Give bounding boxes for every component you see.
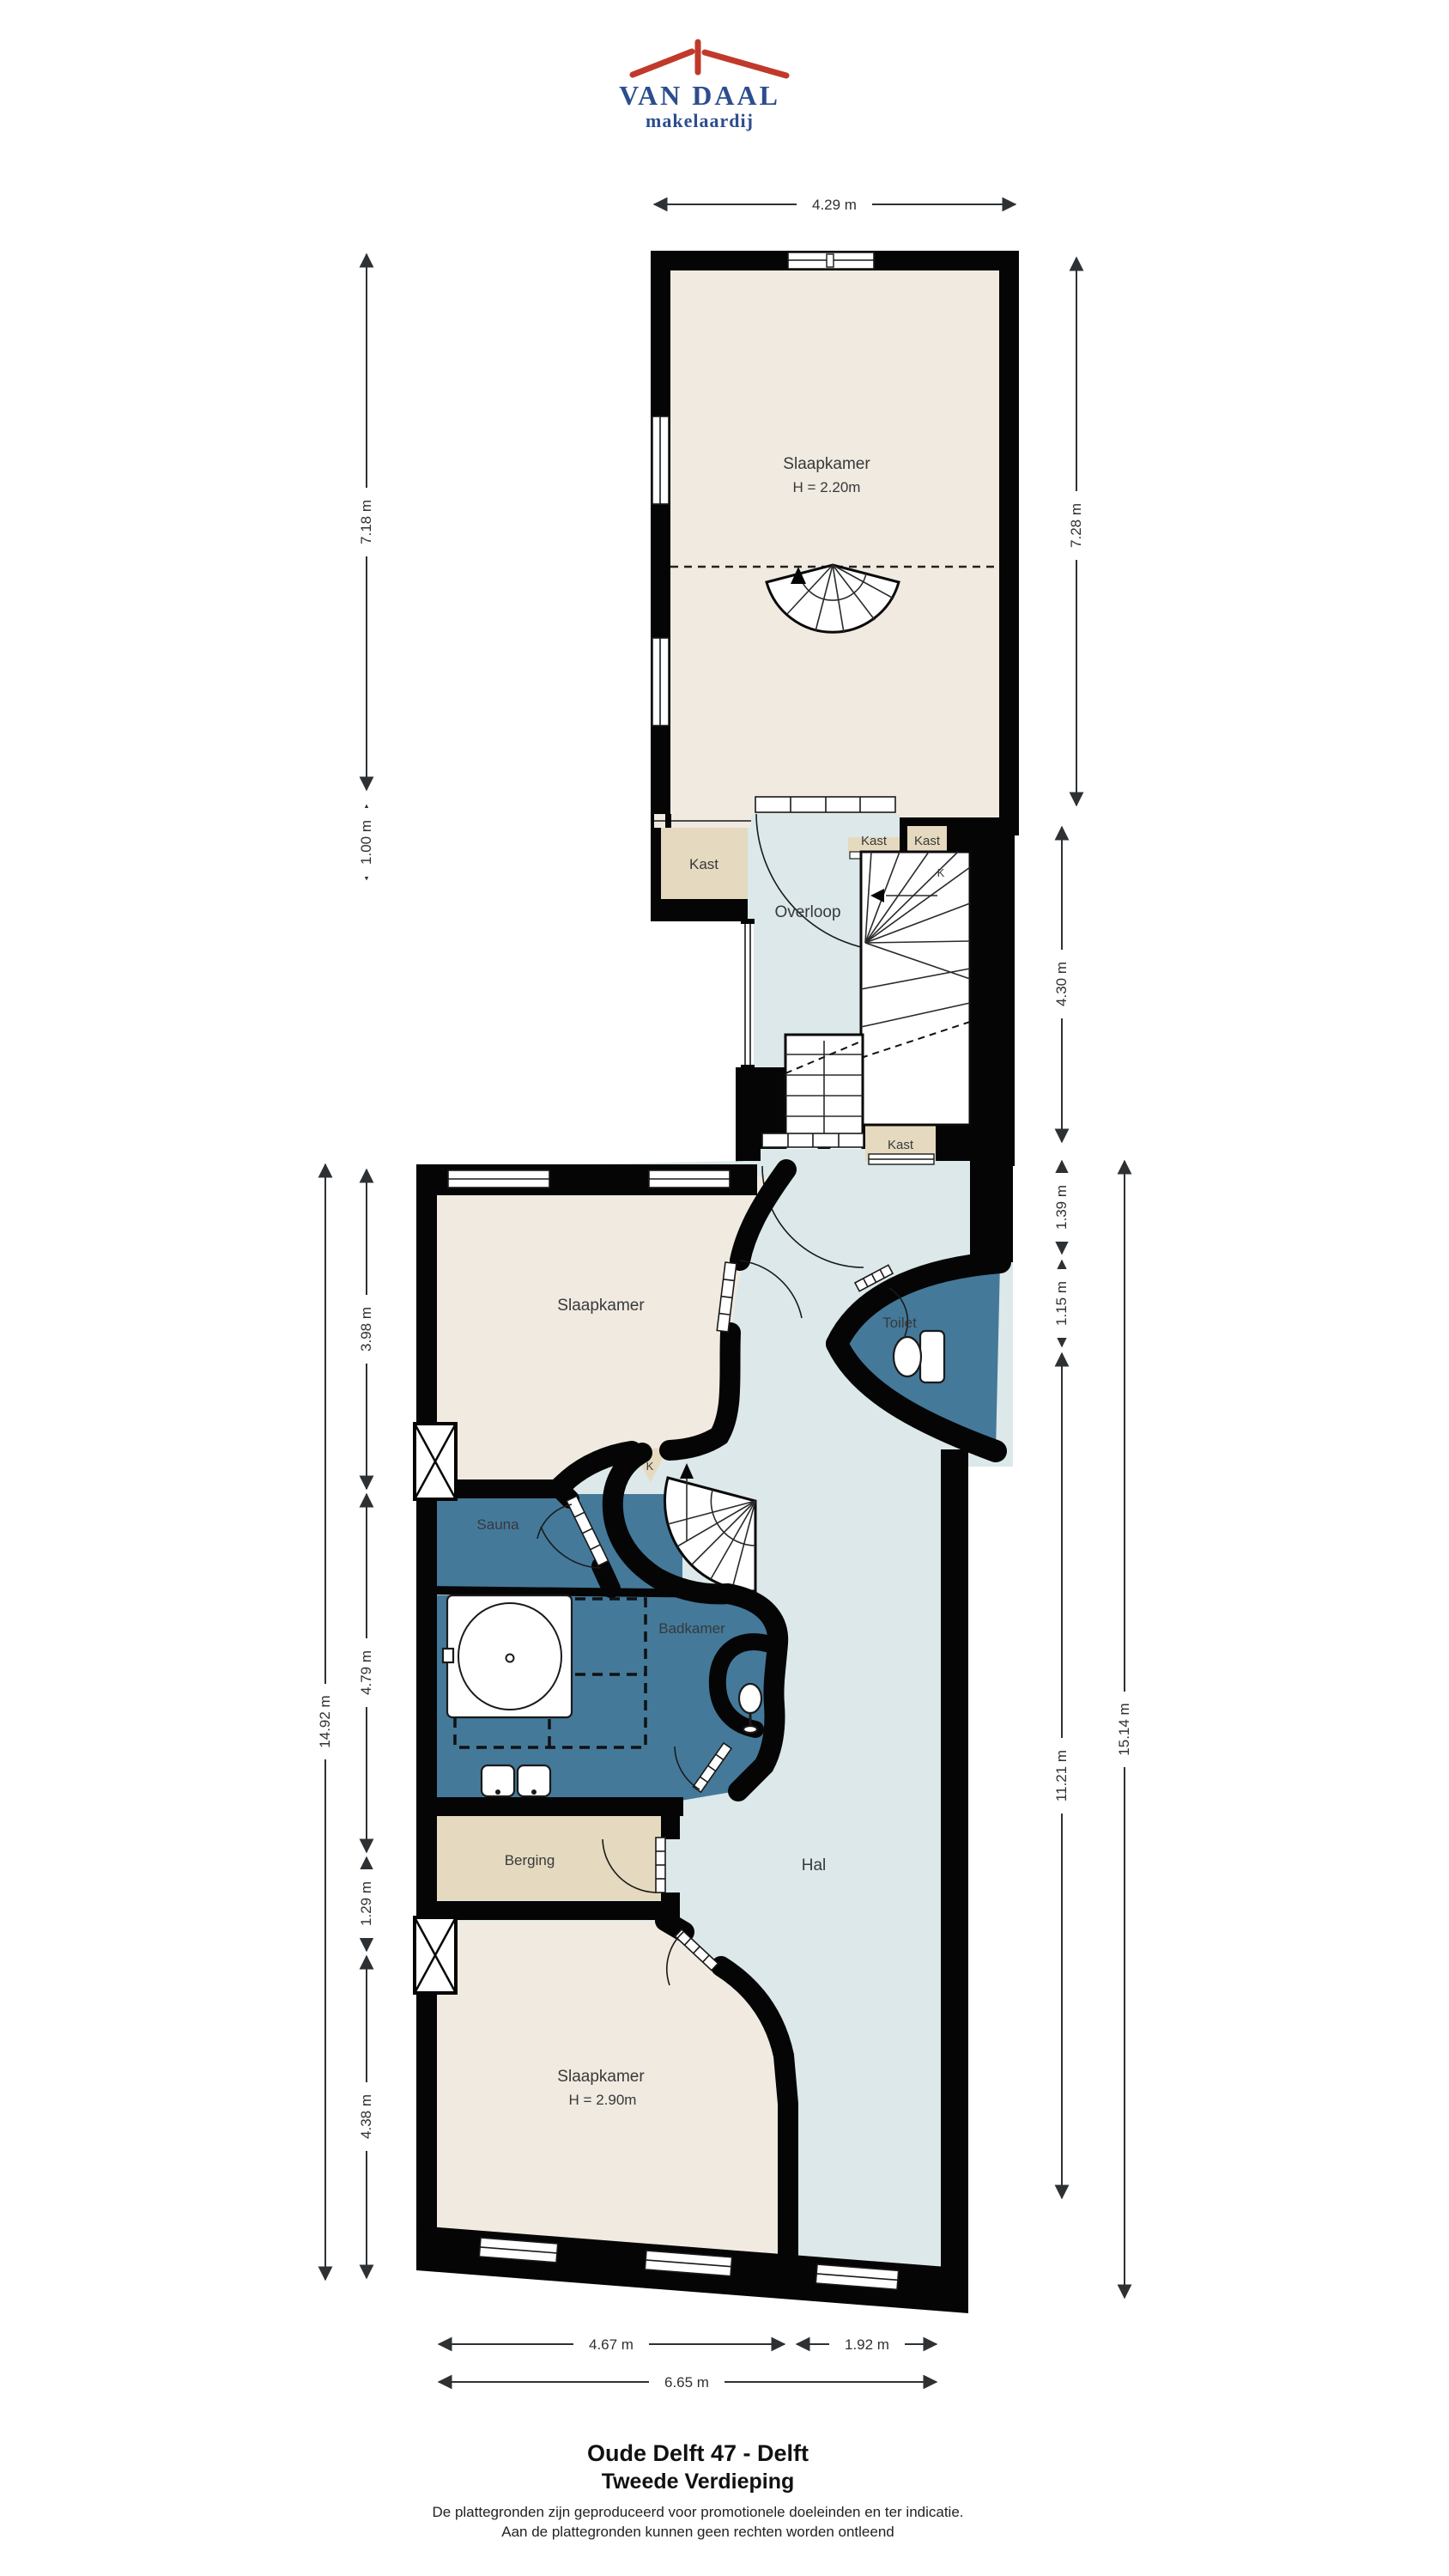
dim-665-label: 6.65 m <box>664 2374 709 2391</box>
floorplan-svg: VAN DAAL makelaardij <box>0 0 1449 2576</box>
label-k-upper: K <box>937 866 945 879</box>
dim-192-label: 1.92 m <box>845 2336 889 2353</box>
dim-upper-right-main: 7.28 m <box>1065 258 1086 805</box>
dim-bottom-total: 6.65 m <box>439 2372 937 2392</box>
label-badkamer: Badkamer <box>658 1620 725 1637</box>
dim-100-label: 1.00 m <box>358 820 374 865</box>
label-slaapkamer-bottom: Slaapkamer <box>557 2068 645 2086</box>
bathtub-icon <box>443 1595 572 1717</box>
label-k-nook: K <box>646 1460 654 1473</box>
label-kast-small-1: Kast <box>861 834 888 848</box>
window-left-2 <box>652 638 669 726</box>
lower-building <box>415 1133 1013 2313</box>
dim-398-label: 3.98 m <box>358 1307 374 1352</box>
dim-1121-label: 11.21 m <box>1053 1750 1070 1801</box>
label-kast-left: Kast <box>689 856 718 872</box>
label-slaapkamer-top: Slaapkamer <box>783 455 870 473</box>
dim-438: 4.38 m <box>355 1956 376 2278</box>
dim-1492-label: 14.92 m <box>317 1695 333 1747</box>
van-daal-logo: VAN DAAL makelaardij <box>619 42 786 131</box>
label-sauna: Sauna <box>476 1516 519 1533</box>
footer-subtitle: Tweede Verdieping <box>602 2470 795 2494</box>
dim-398: 3.98 m <box>355 1170 376 1489</box>
footer-title: Oude Delft 47 - Delft <box>587 2440 809 2466</box>
slaapkamer-top-floor <box>670 270 999 817</box>
dim-1514-label: 15.14 m <box>1116 1703 1132 1755</box>
dim-718-label: 7.18 m <box>358 500 374 544</box>
dim-129: 1.29 m <box>355 1857 376 1951</box>
dim-bottom-left: 4.67 m <box>439 2334 785 2354</box>
winder-stair <box>861 852 970 1125</box>
footer-disclaimer-1: De plattegronden zijn geproduceerd voor … <box>432 2504 963 2520</box>
window-left-1 <box>652 416 669 504</box>
dim-479-label: 4.79 m <box>358 1650 374 1695</box>
logo-line1: VAN DAAL <box>619 80 780 111</box>
dim-139-label: 1.39 m <box>1053 1185 1070 1230</box>
dim-115: 1.15 m <box>1051 1261 1071 1346</box>
dim-stair-right: 4.30 m <box>1051 827 1071 1142</box>
upper-building <box>651 251 1019 1166</box>
dim-bottom-right: 1.92 m <box>797 2334 937 2354</box>
label-kast-small-2: Kast <box>914 834 941 848</box>
dim-430-label: 4.30 m <box>1053 962 1070 1006</box>
label-slaapkamer-bottom-height: H = 2.90m <box>569 2092 637 2108</box>
dim-479: 4.79 m <box>355 1494 376 1852</box>
label-toilet: Toilet <box>882 1315 917 1331</box>
footer-disclaimer-2: Aan de plattegronden kunnen geen rechten… <box>501 2524 894 2540</box>
label-slaapkamer-mid: Slaapkamer <box>557 1297 645 1315</box>
dim-139: 1.39 m <box>1051 1161 1071 1254</box>
dim-upper-left-main: 7.18 m <box>355 254 376 790</box>
window-lower-top-2 <box>649 1170 730 1188</box>
dim-1492: 14.92 m <box>314 1164 335 2280</box>
logo-line2: makelaardij <box>646 110 754 131</box>
shaft-box-2 <box>415 1917 456 1993</box>
dim-1121: 11.21 m <box>1051 1353 1071 2198</box>
dim-467-label: 4.67 m <box>589 2336 634 2353</box>
dim-top-label: 4.29 m <box>812 197 857 213</box>
shaft-box-1 <box>415 1424 456 1499</box>
dim-438-label: 4.38 m <box>358 2094 374 2139</box>
roof-icon <box>633 42 786 76</box>
floorplan-page: VAN DAAL makelaardij <box>0 0 1449 2576</box>
dim-top: 4.29 m <box>654 194 1016 215</box>
label-hal: Hal <box>802 1856 827 1874</box>
label-berging: Berging <box>505 1852 555 1868</box>
dim-728-label: 7.28 m <box>1068 503 1084 548</box>
dim-1514: 15.14 m <box>1113 1161 1134 2298</box>
window-top <box>788 252 874 269</box>
overloop-floor <box>748 817 861 1067</box>
label-slaapkamer-top-height: H = 2.20m <box>793 479 861 495</box>
dim-upper-left-small: 1.00 m <box>355 805 376 879</box>
window-lower-top-1 <box>448 1170 549 1188</box>
footer: Oude Delft 47 - Delft Tweede Verdieping … <box>432 2440 963 2540</box>
label-kast-hal: Kast <box>888 1138 914 1152</box>
dim-115-label: 1.15 m <box>1053 1281 1070 1326</box>
dim-129-label: 1.29 m <box>358 1881 374 1926</box>
label-overloop: Overloop <box>774 903 840 921</box>
